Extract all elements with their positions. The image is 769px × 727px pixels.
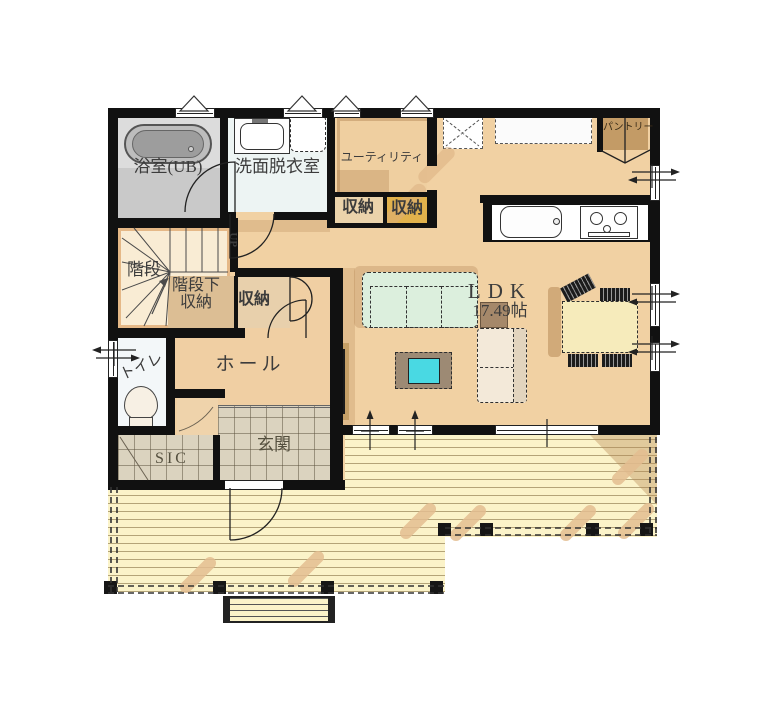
deck-post <box>213 581 226 594</box>
window <box>650 342 660 372</box>
sofa-cushions <box>370 286 478 328</box>
wall <box>108 426 175 435</box>
deck-left <box>108 487 445 592</box>
wall <box>330 268 343 430</box>
understair-storage <box>168 276 234 328</box>
wall <box>213 435 220 482</box>
hall-nook <box>290 276 330 328</box>
stove-burner <box>590 212 603 225</box>
kitchen-faucet <box>553 218 560 225</box>
wall <box>327 118 335 228</box>
window <box>175 108 215 118</box>
wall <box>108 218 230 228</box>
deck-post <box>438 523 451 536</box>
bathtub-inner <box>132 130 204 158</box>
sliding-window <box>397 425 433 435</box>
wall <box>274 212 332 220</box>
wall <box>333 223 429 228</box>
floor-plan: 浴室(UB) 洗面脱衣室 ユーティリティ 収納 収納 パントリー 階段 UP 階… <box>0 0 769 727</box>
stove-grill <box>588 232 630 237</box>
refrigerator-space <box>443 117 483 149</box>
wall <box>230 218 238 272</box>
armchair-divider <box>480 367 514 368</box>
wall <box>427 118 437 166</box>
side-table <box>480 302 508 328</box>
wall <box>330 425 343 490</box>
deck-post <box>480 523 493 536</box>
window <box>333 108 361 118</box>
dining-chair <box>568 354 598 367</box>
entrance-threshold <box>225 480 283 490</box>
sofa-cushion <box>441 286 478 328</box>
corridor-shade <box>238 220 330 232</box>
dining-chair <box>600 288 630 301</box>
wall <box>175 389 225 398</box>
wall <box>108 480 225 490</box>
utility-shade <box>337 170 389 192</box>
deck-post <box>430 581 443 594</box>
wall <box>108 328 245 338</box>
wall <box>166 338 175 426</box>
kitchen-cabinet <box>495 114 592 144</box>
wall <box>333 192 429 197</box>
bathtub-drain <box>188 146 194 152</box>
wall <box>597 112 603 152</box>
window <box>650 165 660 201</box>
deck-post <box>321 581 334 594</box>
armchair-armrest <box>513 329 526 402</box>
sliding-window <box>495 425 599 435</box>
bathroom-wet-area <box>118 168 220 218</box>
window <box>108 340 118 378</box>
sofa-cushion <box>406 286 443 328</box>
stove-burner <box>614 212 627 225</box>
armchair <box>477 328 527 403</box>
deck-post <box>640 523 653 536</box>
wall <box>220 118 228 218</box>
wall <box>480 195 660 203</box>
hall-door-strip <box>245 328 330 338</box>
wall <box>235 268 330 277</box>
shoe-in-closet <box>118 435 213 482</box>
dining-chair <box>602 354 632 367</box>
window <box>400 108 434 118</box>
window <box>283 108 323 118</box>
deck-steps <box>223 596 335 623</box>
dining-table <box>562 301 638 353</box>
sofa-cushion <box>370 286 407 328</box>
window <box>650 283 660 327</box>
toilet-bowl <box>124 386 158 420</box>
washing-machine-space <box>290 114 326 152</box>
hall-storage-closet <box>238 276 290 328</box>
deck-post <box>586 523 599 536</box>
vestibule-step <box>177 398 218 435</box>
vanity-basin <box>240 123 284 150</box>
entrance-tile <box>218 405 330 482</box>
vanity-faucet <box>252 119 268 123</box>
dining-rug <box>548 287 561 357</box>
sliding-window <box>352 425 390 435</box>
wall <box>234 276 238 328</box>
coffee-table-top <box>408 358 440 384</box>
deck-post <box>104 581 117 594</box>
storage-utility-left <box>333 197 383 223</box>
wall <box>383 197 387 223</box>
